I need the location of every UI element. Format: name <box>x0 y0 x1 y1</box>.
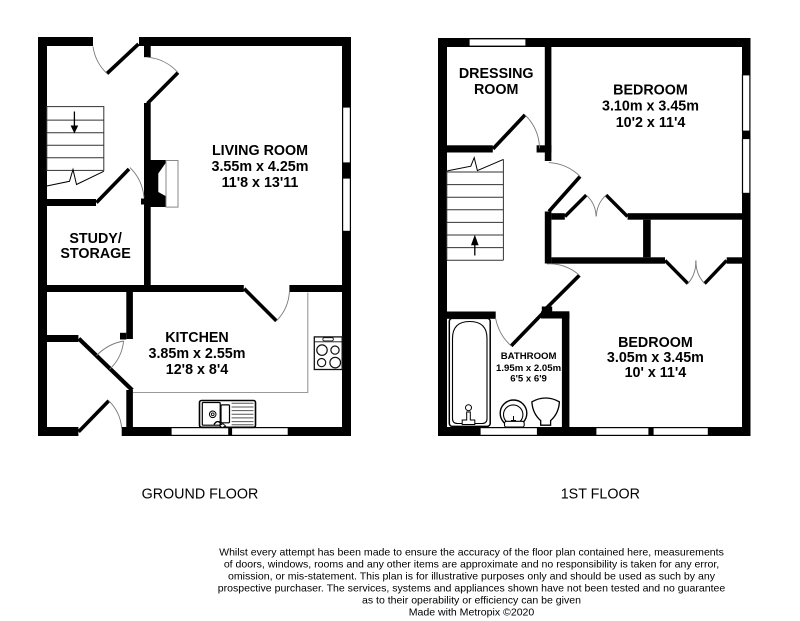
svg-text:6'5 x 6'9: 6'5 x 6'9 <box>510 373 547 384</box>
svg-text:12'8 x 8'4: 12'8 x 8'4 <box>166 362 228 378</box>
svg-text:3.85m x 2.55m: 3.85m x 2.55m <box>149 346 246 362</box>
svg-text:Made with Metropix ©2020: Made with Metropix ©2020 <box>409 607 535 619</box>
svg-text:1.95m x 2.05m: 1.95m x 2.05m <box>496 363 561 374</box>
svg-text:BEDROOM: BEDROOM <box>618 335 693 351</box>
svg-text:omission, or mis-statement. Th: omission, or mis-statement. This plan is… <box>228 571 716 583</box>
svg-text:prospective purchaser. The ser: prospective purchaser. The services, sys… <box>218 583 726 595</box>
svg-text:3.10m x 3.45m: 3.10m x 3.45m <box>602 99 699 115</box>
svg-text:STUDY/: STUDY/ <box>69 231 121 247</box>
svg-text:ROOM: ROOM <box>474 82 518 98</box>
svg-text:Whilst every attempt has been: Whilst every attempt has been made to en… <box>219 547 724 559</box>
svg-text:KITCHEN: KITCHEN <box>165 330 229 346</box>
svg-text:3.55m x 4.25m: 3.55m x 4.25m <box>212 159 309 175</box>
svg-text:3.05m x 3.45m: 3.05m x 3.45m <box>607 350 704 366</box>
svg-text:BATHROOM: BATHROOM <box>501 351 557 362</box>
svg-text:as to their operability or eff: as to their operability or efficiency ca… <box>362 595 581 607</box>
svg-text:STORAGE: STORAGE <box>60 246 130 262</box>
svg-text:LIVING ROOM: LIVING ROOM <box>212 143 308 159</box>
svg-text:of doors, windows, rooms and a: of doors, windows, rooms and any other i… <box>224 559 719 571</box>
svg-text:BEDROOM: BEDROOM <box>613 82 688 98</box>
svg-text:DRESSING: DRESSING <box>459 66 534 82</box>
svg-text:GROUND FLOOR: GROUND FLOOR <box>142 487 259 503</box>
svg-text:10'2 x 11'4: 10'2 x 11'4 <box>616 115 686 131</box>
svg-text:11'8 x 13'11: 11'8 x 13'11 <box>222 175 299 191</box>
svg-text:1ST FLOOR: 1ST FLOOR <box>561 487 640 503</box>
svg-text:10' x 11'4: 10' x 11'4 <box>625 365 687 381</box>
